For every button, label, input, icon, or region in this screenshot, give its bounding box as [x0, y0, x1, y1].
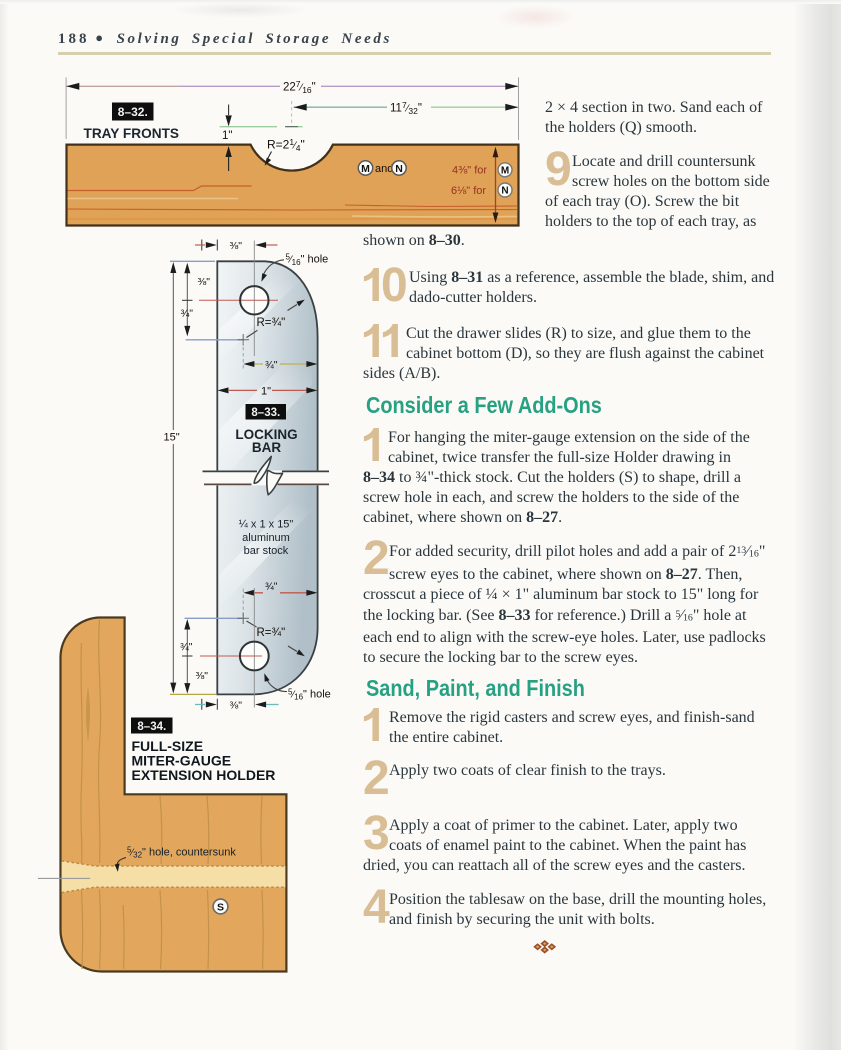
svg-text:6⅛" for: 6⅛" for [451, 185, 486, 197]
svg-text:15": 15" [164, 432, 180, 444]
svg-text:and: and [375, 163, 393, 175]
svg-text:BAR: BAR [252, 440, 281, 455]
svg-text:R=21⁄4": R=21⁄4" [267, 137, 305, 153]
svg-text:5⁄16" hole: 5⁄16" hole [286, 253, 329, 267]
svg-text:¾": ¾" [265, 359, 278, 371]
svg-text:¾": ¾" [265, 580, 278, 592]
svg-text:⅜": ⅜" [230, 240, 243, 252]
svg-text:8–33.: 8–33. [251, 407, 280, 419]
svg-text:M: M [501, 165, 509, 176]
svg-text:R=¾": R=¾" [257, 317, 286, 329]
svg-text:8–34.: 8–34. [137, 721, 166, 733]
svg-text:⅜": ⅜" [196, 670, 209, 682]
svg-text:1": 1" [222, 130, 232, 142]
svg-text:⅜": ⅜" [198, 276, 211, 288]
svg-text:N: N [395, 163, 403, 175]
svg-text:M: M [361, 163, 370, 175]
svg-text:N: N [501, 186, 508, 197]
svg-text:aluminum: aluminum [242, 532, 290, 544]
svg-text:1": 1" [261, 386, 271, 398]
svg-text:¾": ¾" [180, 641, 193, 653]
svg-text:8–32.: 8–32. [118, 105, 148, 119]
svg-text:5⁄32" hole, countersunk: 5⁄32" hole, countersunk [127, 845, 236, 859]
svg-text:R=¾": R=¾" [257, 627, 286, 639]
svg-text:EXTENSION HOLDER: EXTENSION HOLDER [132, 767, 276, 783]
svg-text:5⁄16" hole: 5⁄16" hole [288, 687, 331, 701]
svg-text:TRAY FRONTS: TRAY FRONTS [84, 125, 180, 141]
svg-text:227⁄16": 227⁄16" [283, 79, 316, 95]
svg-text:¾": ¾" [181, 308, 194, 320]
svg-text:S: S [217, 901, 224, 913]
svg-text:⅜": ⅜" [230, 700, 243, 712]
svg-text:¼ x 1 x 15": ¼ x 1 x 15" [239, 519, 294, 531]
svg-text:117⁄32": 117⁄32" [390, 100, 422, 116]
svg-text:bar stock: bar stock [244, 545, 289, 557]
svg-text:4⅜" for: 4⅜" for [452, 165, 487, 177]
